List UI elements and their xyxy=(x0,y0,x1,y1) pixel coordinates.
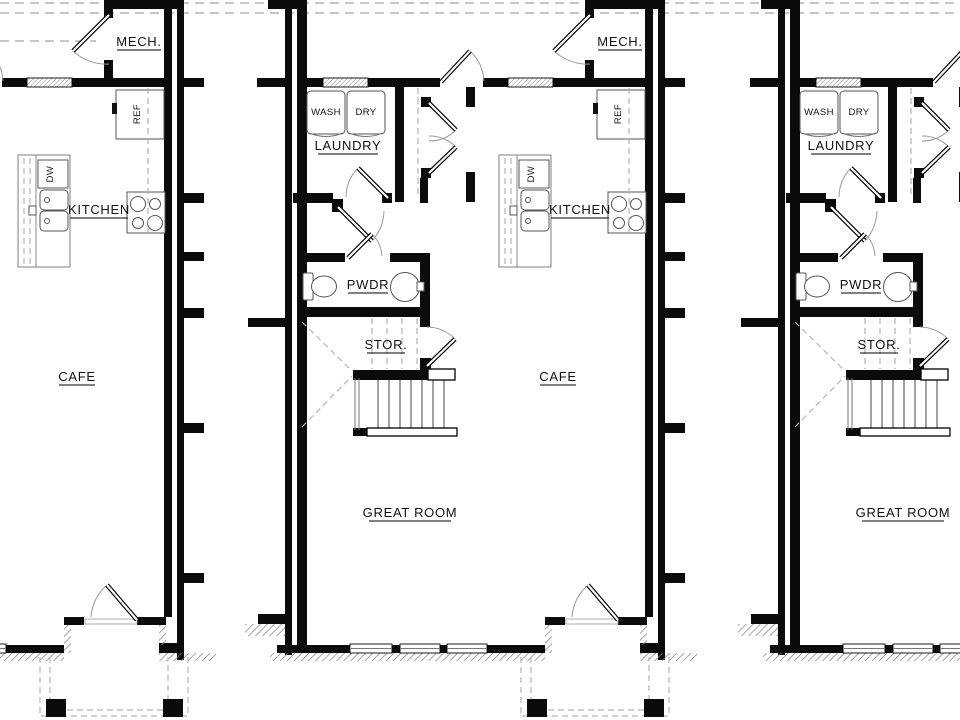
unit-instance-right xyxy=(738,0,960,717)
floor-plan-canvas: MECH. KITCHEN CAFE LAUNDRY PWDR STOR. xyxy=(0,0,960,720)
floor-plan-page: MECH. KITCHEN CAFE LAUNDRY PWDR STOR. xyxy=(0,0,960,720)
unit-instance-left xyxy=(0,0,216,717)
unit-instance-center xyxy=(245,0,697,717)
